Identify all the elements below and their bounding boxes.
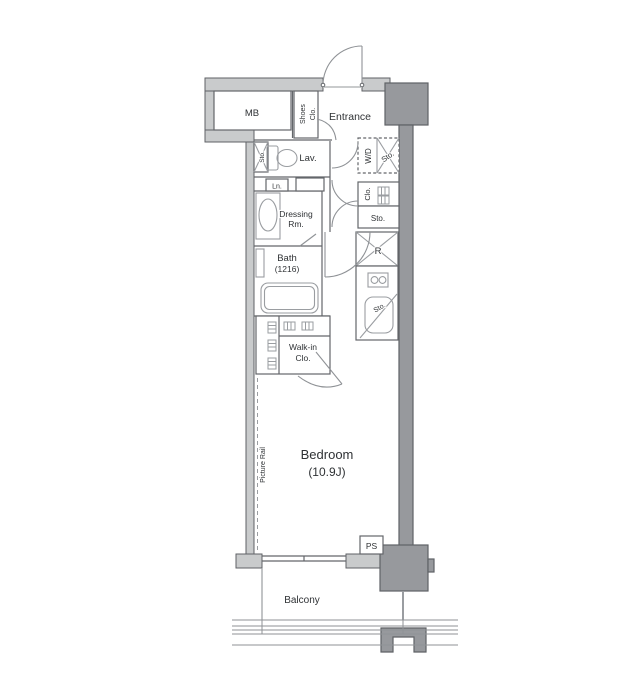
label-bath-line1: Bath [277, 253, 297, 264]
label-wd: W/D [364, 148, 373, 164]
label-mb: MB [245, 108, 259, 119]
entrance-door [321, 46, 364, 87]
floor-plan-svg: MB Shoes Clo. Entrance Sto. Lav. W/D Sto… [0, 0, 626, 698]
label-shoes-line1: Shoes [300, 104, 307, 124]
label-picture-rail: Picture Rail [260, 447, 267, 483]
column-top-right [385, 83, 428, 125]
closet-door-arc-upper [332, 180, 358, 206]
label-walkin-line2: Clo. [295, 353, 310, 363]
lavatory-door-arc [332, 142, 358, 168]
label-balcony: Balcony [284, 595, 320, 606]
bath-door-leaf [300, 234, 316, 246]
kitchen-counter [356, 266, 398, 340]
label-walkin-line1: Walk-in [289, 342, 317, 352]
label-dressing-line2: Rm. [288, 219, 304, 229]
column-bottom-right [380, 545, 428, 591]
label-storage: Sto. [371, 214, 385, 223]
closet-door-arc-lower [332, 201, 358, 227]
label-closet: Clo. [363, 187, 372, 200]
label-bath-line2: (1216) [275, 264, 300, 274]
label-lav: Lav. [299, 153, 316, 164]
right-shaft-wall [399, 125, 413, 559]
label-lav-storage: Sto. [259, 151, 266, 163]
label-linen: Ln. [272, 184, 282, 191]
washer-pan [296, 178, 324, 191]
label-ps: PS [366, 541, 378, 551]
label-shoes-line2: Clo. [310, 108, 317, 121]
label-bedroom-line2: (10.9J) [308, 465, 345, 479]
label-entrance: Entrance [329, 111, 371, 123]
label-bedroom-line1: Bedroom [301, 447, 354, 462]
balcony-window [262, 556, 346, 561]
toilet-icon [267, 146, 297, 170]
label-dressing-line1: Dressing [279, 209, 313, 219]
floor-plan-page: MB Shoes Clo. Entrance Sto. Lav. W/D Sto… [0, 0, 626, 698]
label-refrigerator: R [375, 246, 382, 257]
vanity-sink-icon [256, 193, 280, 239]
